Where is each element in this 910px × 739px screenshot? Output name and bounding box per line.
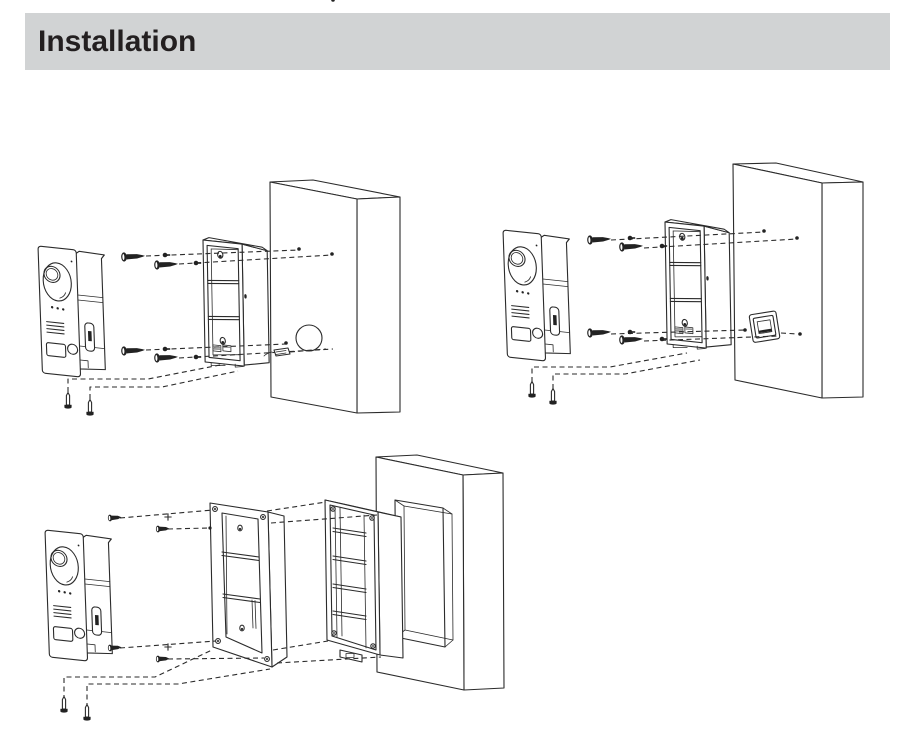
figure-surface-mount-cable-hole — [38, 0, 400, 416]
mounting-bracket — [665, 219, 731, 354]
intercom-device — [45, 530, 116, 664]
manual-page: Installation — [0, 0, 910, 739]
wall-with-cable-hole — [270, 180, 400, 413]
rough-in-box — [325, 500, 403, 662]
mounting-bracket — [203, 237, 269, 372]
figure-flush-mount — [45, 455, 504, 721]
intercom-device — [503, 230, 574, 364]
figure-surface-mount-86-box — [503, 163, 863, 405]
wall-with-junction-box — [733, 163, 863, 398]
intercom-device — [38, 246, 109, 380]
installation-diagrams — [0, 0, 910, 739]
flush-frame — [210, 503, 287, 667]
junction-box — [749, 311, 780, 343]
